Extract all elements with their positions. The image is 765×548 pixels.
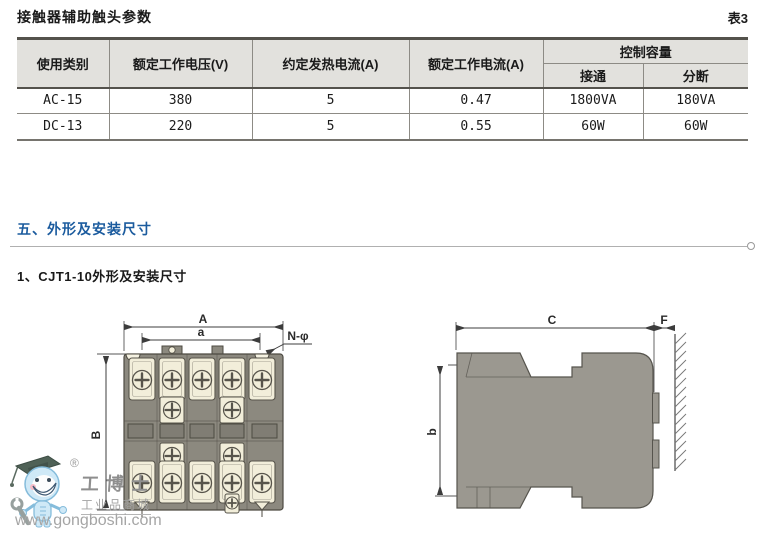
dimension-label-A: A [199,312,208,326]
dimension-label-B: B [89,430,103,439]
terminal-screw-icon [129,461,155,503]
terminal-screw-icon [129,358,155,400]
column-header-thermal-current: 约定发热电流(A) [252,39,409,88]
aux-screw-icon [160,397,184,423]
wall-hatching [675,333,686,470]
terminal-screw-icon [189,461,215,503]
rail-clip-tab [653,393,660,423]
table-cell: 5 [252,114,409,140]
table-cell: 5 [252,88,409,114]
aux-contact-parameters-table: 使用类别 额定工作电压(V) 约定发热电流(A) 额定工作电流(A) 控制容量 … [17,37,748,141]
contact-windows [128,424,277,438]
rail-clip-tab [653,440,660,468]
terminal-stub-lines [142,510,262,517]
table-cell: 180VA [643,88,748,114]
table-cell: 60W [543,114,643,140]
subsection-heading: 1、CJT1-10外形及安装尺寸 [17,266,187,285]
table-cell: 1800VA [543,88,643,114]
dimension-label-b: b [425,428,439,435]
column-header-rated-voltage: 额定工作电压(V) [109,39,252,88]
terminal-screw-icon [159,461,185,503]
mounting-hole-leader-line [267,344,312,353]
front-view-drawing: A a N-φ B [89,312,312,517]
side-view-drawing: C F b [425,313,686,508]
divider-end-dot [747,242,755,250]
aux-screw-icon [220,397,244,423]
dimension-label-C: C [548,313,557,327]
table-cell: 0.47 [409,88,543,114]
dimension-label-a: a [198,325,205,339]
table-cell: 0.55 [409,114,543,140]
dimension-drawings: A a N-φ B [0,300,765,548]
column-header-control-capacity: 控制容量 [543,39,748,64]
terminal-screw-icon [219,358,245,400]
section-divider [10,246,747,247]
column-header-make: 接通 [543,64,643,88]
table-number-label: 表3 [728,8,748,27]
dimension-label-n-phi: N-φ [287,329,309,343]
table-cell: 380 [109,88,252,114]
datasheet-page: 接触器辅助触头参数 表3 使用类别 额定工作电压(V) 约定发热电流(A) 额定… [0,0,765,548]
terminal-screw-icon [249,358,275,400]
tab-screw-icon [169,347,175,353]
table-cell: 220 [109,114,252,140]
column-header-usage-category: 使用类别 [17,39,109,88]
terminal-screw-icon [249,461,275,503]
dimension-label-F: F [660,313,667,327]
table-cell: AC-15 [17,88,109,114]
terminal-screw-icon [189,358,215,400]
contactor-side-body [457,353,653,508]
column-header-rated-current: 额定工作电流(A) [409,39,543,88]
table-cell: DC-13 [17,114,109,140]
table-row-dc13: DC-13 220 5 0.55 60W 60W [17,114,748,140]
table-cell: 60W [643,114,748,140]
column-header-break: 分断 [643,64,748,88]
table-row-ac15: AC-15 380 5 0.47 1800VA 180VA [17,88,748,114]
terminal-screw-icon [159,358,185,400]
section-heading: 五、外形及安装尺寸 [17,219,152,239]
page-title: 接触器辅助触头参数 [17,7,152,27]
